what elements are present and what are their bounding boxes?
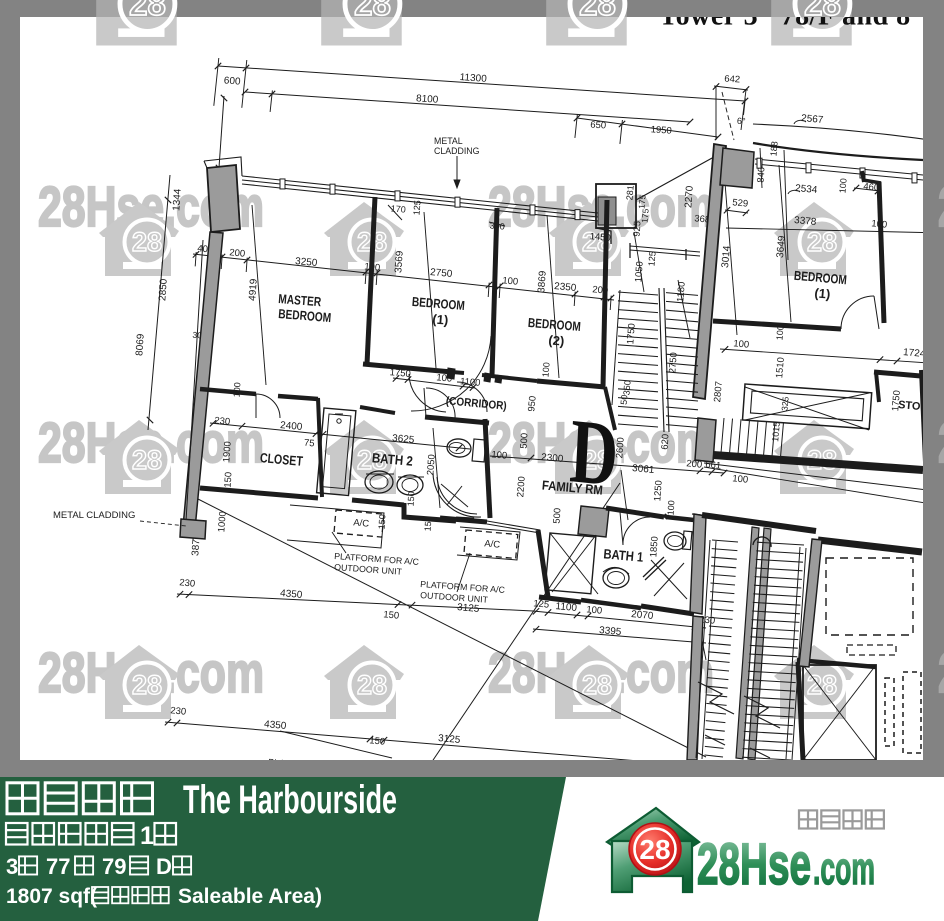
svg-text:500: 500 [518, 433, 530, 450]
svg-text:28: 28 [582, 670, 612, 700]
svg-text:11300: 11300 [459, 72, 487, 85]
svg-text:2400: 2400 [280, 420, 304, 433]
svg-text:28Hse.com: 28Hse.com [938, 641, 944, 705]
svg-text:(1): (1) [814, 285, 831, 301]
svg-text:.com: .com [813, 843, 875, 894]
svg-text:150: 150 [222, 472, 234, 489]
svg-text:188: 188 [768, 141, 779, 157]
svg-text:79: 79 [102, 854, 126, 879]
svg-text:STO: STO [898, 399, 922, 413]
svg-text:A/C: A/C [353, 517, 370, 529]
svg-text:2534: 2534 [795, 183, 819, 196]
svg-text:100: 100 [586, 604, 603, 616]
svg-text:D: D [156, 854, 172, 879]
svg-text:4919: 4919 [247, 278, 260, 301]
svg-text:28: 28 [132, 445, 162, 475]
svg-text:3125: 3125 [457, 602, 481, 615]
svg-text:950: 950 [526, 395, 538, 412]
svg-text:230: 230 [214, 415, 231, 427]
svg-text:642: 642 [724, 73, 741, 85]
svg-text:3014: 3014 [720, 245, 733, 269]
svg-text:77: 77 [46, 854, 70, 879]
svg-text:200: 200 [229, 247, 246, 259]
svg-text:3625: 3625 [392, 433, 416, 446]
svg-text:350: 350 [621, 380, 632, 396]
svg-text:28: 28 [357, 670, 387, 700]
svg-text:3061: 3061 [632, 463, 656, 476]
svg-text:28Hse.com: 28Hse.com [938, 175, 944, 239]
svg-text:28Hse: 28Hse [697, 832, 811, 897]
svg-text:100: 100 [665, 500, 676, 516]
svg-text:8069: 8069 [134, 333, 147, 356]
svg-text:230: 230 [170, 705, 187, 717]
svg-text:100: 100 [837, 178, 848, 194]
svg-text:150: 150 [369, 735, 386, 747]
svg-text:2750: 2750 [430, 267, 454, 280]
svg-text:28: 28 [132, 227, 162, 257]
svg-text:100: 100 [491, 449, 508, 461]
svg-text:175: 175 [639, 208, 650, 223]
svg-text:281: 281 [624, 185, 635, 201]
svg-text:170: 170 [390, 203, 406, 214]
svg-text:3250: 3250 [295, 256, 319, 269]
svg-text:28Hse.com: 28Hse.com [938, 411, 944, 475]
svg-text:100: 100 [733, 338, 750, 350]
svg-text:125: 125 [646, 251, 657, 267]
svg-text:2070: 2070 [631, 609, 655, 622]
svg-text:75: 75 [303, 438, 314, 450]
svg-text:3378: 3378 [794, 215, 818, 228]
svg-text:CLADDING: CLADDING [434, 146, 480, 156]
svg-text:600: 600 [223, 75, 241, 87]
svg-text:2200: 2200 [515, 476, 527, 498]
svg-text:28: 28 [639, 834, 670, 865]
svg-text:150: 150 [383, 609, 400, 621]
svg-text:325: 325 [779, 396, 790, 411]
svg-text:METAL CLADDING: METAL CLADDING [53, 510, 135, 521]
svg-text:2270: 2270 [683, 185, 696, 208]
svg-text:A/C: A/C [484, 538, 501, 550]
svg-text:1750: 1750 [625, 323, 637, 345]
svg-text:28: 28 [807, 227, 837, 257]
svg-text:D: D [568, 401, 621, 506]
svg-text:150: 150 [405, 491, 416, 507]
svg-text:1250: 1250 [652, 480, 664, 502]
svg-text:1344: 1344 [171, 188, 184, 211]
svg-text:4350: 4350 [264, 719, 288, 732]
svg-text:529: 529 [732, 197, 749, 209]
svg-text:(1): (1) [432, 311, 449, 327]
svg-text:6°: 6° [737, 116, 747, 127]
svg-text:1015: 1015 [770, 421, 782, 442]
svg-text:The Harbourside: The Harbourside [183, 778, 397, 822]
svg-text:8100: 8100 [416, 93, 439, 106]
svg-text:28: 28 [132, 670, 162, 700]
svg-text:1510: 1510 [774, 357, 787, 379]
svg-text:METAL: METAL [434, 136, 463, 146]
svg-text:4350: 4350 [280, 588, 304, 601]
svg-text:1: 1 [140, 822, 154, 850]
svg-text:3: 3 [6, 854, 18, 879]
svg-text:100: 100 [732, 473, 749, 485]
svg-text:2567: 2567 [801, 113, 825, 126]
svg-text:3395: 3395 [599, 625, 623, 638]
svg-text:2350: 2350 [554, 281, 578, 294]
svg-text:1807 sqf(: 1807 sqf( [6, 885, 97, 908]
svg-text:100: 100 [502, 275, 519, 287]
svg-text:3869: 3869 [536, 270, 549, 293]
svg-text:620: 620 [659, 434, 671, 451]
svg-text:28: 28 [807, 670, 837, 700]
svg-text:Saleable Area): Saleable Area) [178, 885, 322, 908]
svg-text:2300: 2300 [541, 452, 565, 465]
svg-text:1950: 1950 [650, 124, 672, 136]
svg-text:2807: 2807 [712, 381, 725, 403]
svg-text:1900: 1900 [221, 441, 233, 463]
svg-text:(2): (2) [548, 332, 565, 348]
svg-text:150: 150 [376, 514, 387, 530]
svg-text:50: 50 [619, 394, 630, 405]
svg-text:1724: 1724 [903, 347, 927, 360]
svg-text:650: 650 [590, 119, 607, 131]
svg-text:230: 230 [179, 577, 196, 589]
svg-text:3649: 3649 [775, 235, 788, 259]
svg-text:3569: 3569 [393, 250, 406, 273]
svg-text:100: 100 [540, 362, 551, 378]
svg-text:1850: 1850 [648, 536, 660, 558]
svg-text:500: 500 [551, 508, 563, 525]
